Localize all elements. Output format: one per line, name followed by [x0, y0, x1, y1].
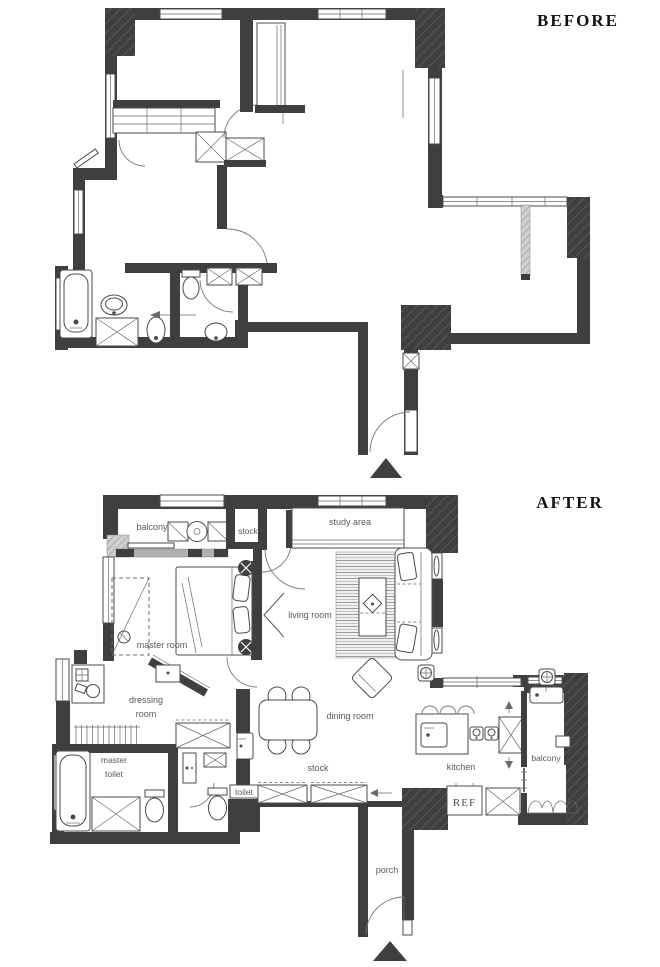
label-kitchen: kitchen	[447, 762, 476, 772]
label-living-room: living room	[288, 610, 332, 620]
label-dressing-room: room	[136, 709, 157, 719]
after-floor-plan: balcony stock study area living room mas…	[0, 487, 660, 967]
label-study-area: study area	[329, 517, 371, 527]
slide-arrow	[505, 701, 513, 713]
stock-cabinets	[258, 783, 392, 804]
label-porch: porch	[376, 865, 399, 875]
wall-basin	[236, 689, 253, 789]
ceiling-fixture-icon	[418, 665, 434, 681]
label-master-toilet: master	[101, 755, 127, 765]
toilet	[208, 788, 227, 820]
label-balcony-top: balcony	[136, 522, 168, 532]
cabinet-x-box	[226, 138, 264, 161]
floorplan-page: { "colors": { "wall": "#3f3f3f", "line":…	[0, 0, 660, 967]
sink	[101, 295, 127, 315]
balcony-sink	[530, 687, 563, 703]
label-refrigerator: REF	[453, 797, 476, 809]
before-duct	[240, 20, 305, 124]
shaft-x-box	[96, 318, 138, 346]
before-window-strip-right	[443, 197, 567, 206]
ceiling-fixture-icon	[539, 669, 555, 685]
laundry-drum	[187, 522, 207, 542]
toilet	[147, 317, 165, 343]
living-room-leader-lines	[264, 593, 284, 637]
label-dressing-room: dressing	[129, 695, 163, 705]
bathtub	[56, 751, 90, 831]
vanity-desk	[72, 665, 104, 703]
sink	[205, 323, 227, 341]
label-dining-room: dining room	[326, 711, 373, 721]
dining-set	[259, 687, 317, 754]
cabinet-x-box	[486, 788, 520, 815]
before-outer-walls	[55, 8, 590, 455]
armchair	[351, 657, 393, 699]
toilet	[182, 270, 200, 299]
shaft-x-box	[92, 797, 140, 831]
entrance-marker-triangle	[370, 458, 402, 478]
before-bathroom-2	[182, 266, 262, 348]
cabinet-x-box	[176, 720, 230, 748]
cabinet-x-box	[236, 268, 262, 285]
cabinet-x-box	[204, 753, 226, 767]
cabinet-x-box	[258, 783, 307, 804]
study-desk	[292, 508, 404, 548]
sofa	[395, 548, 432, 660]
toilet	[145, 790, 164, 822]
kitchen-island	[416, 706, 474, 754]
before-floor-plan: BEFORE	[0, 0, 660, 487]
clothes-rail	[74, 725, 140, 744]
bathtub	[60, 270, 92, 338]
shaft-x-box	[403, 353, 419, 369]
sliding-door-leaf	[521, 768, 527, 792]
label-toilet: toilet	[235, 787, 254, 797]
door-leaf	[183, 753, 196, 783]
slide-arrow	[505, 757, 513, 769]
washer	[168, 522, 188, 541]
before-partition-strip	[521, 205, 530, 280]
before-title: BEFORE	[537, 11, 619, 30]
ceiling-speaker-icon	[238, 639, 254, 655]
balcony-laundry	[116, 522, 228, 558]
label-balcony-right: balcony	[531, 753, 561, 763]
label-stock-bottom: stock	[307, 763, 329, 773]
after-outer-walls	[50, 495, 588, 937]
after-plan-section: balcony stock study area living room mas…	[0, 487, 660, 967]
before-plan-section: BEFORE	[0, 0, 660, 487]
cabinet-x-box	[499, 717, 523, 753]
washer	[208, 522, 228, 541]
after-title: AFTER	[536, 493, 604, 512]
cabinet-x-box	[207, 268, 232, 285]
bathrooms	[56, 689, 258, 838]
master-room	[112, 543, 262, 687]
shaft-x-box	[196, 132, 226, 162]
stove	[470, 727, 498, 740]
coffee-table	[359, 578, 386, 636]
label-stock-top: stock	[238, 526, 259, 536]
cabinet-x-box	[311, 783, 367, 804]
entry-arrow	[370, 789, 392, 797]
before-windows	[56, 9, 567, 330]
before-bathroom-1	[60, 270, 180, 348]
living-room	[264, 548, 555, 699]
label-master-toilet: toilet	[105, 769, 124, 779]
entrance-marker-triangle	[373, 941, 407, 961]
ceiling-speaker-icon	[238, 560, 254, 576]
label-master-room: master room	[137, 640, 188, 650]
